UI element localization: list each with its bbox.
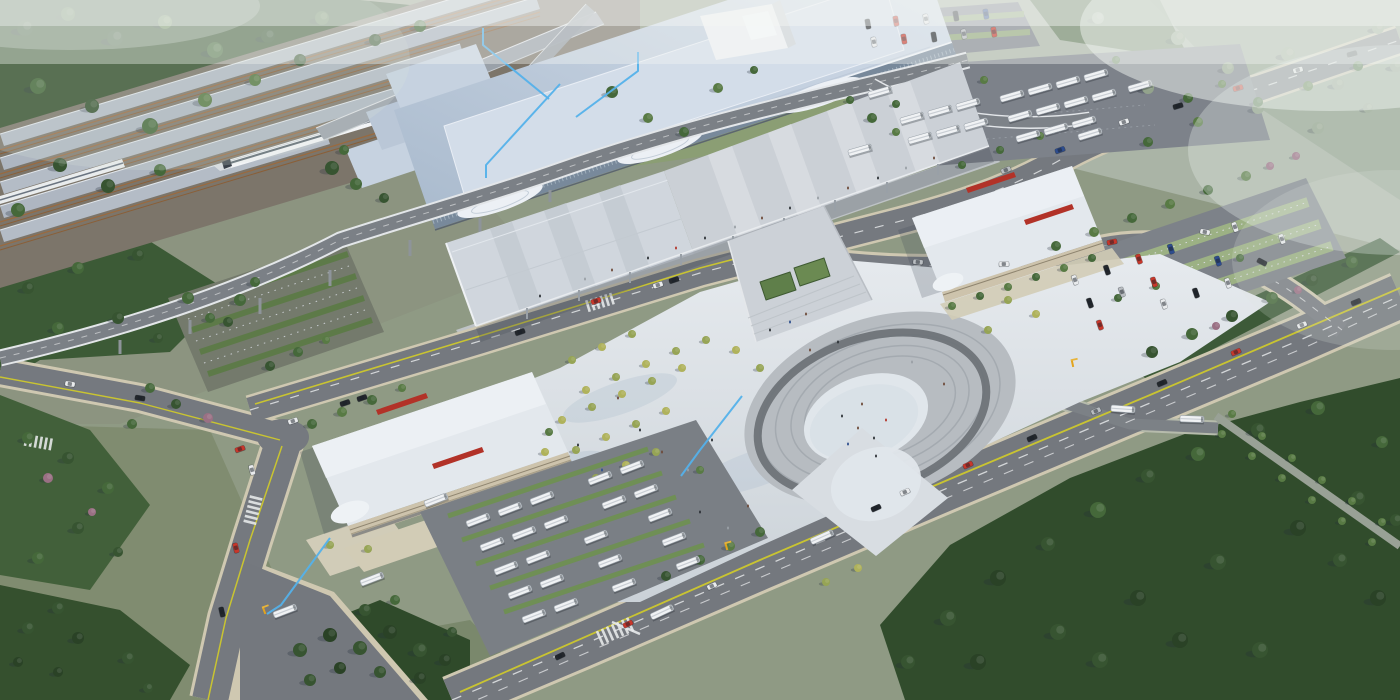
aerial-architectural-rendering	[0, 0, 1400, 700]
render-viewport	[0, 0, 1400, 700]
